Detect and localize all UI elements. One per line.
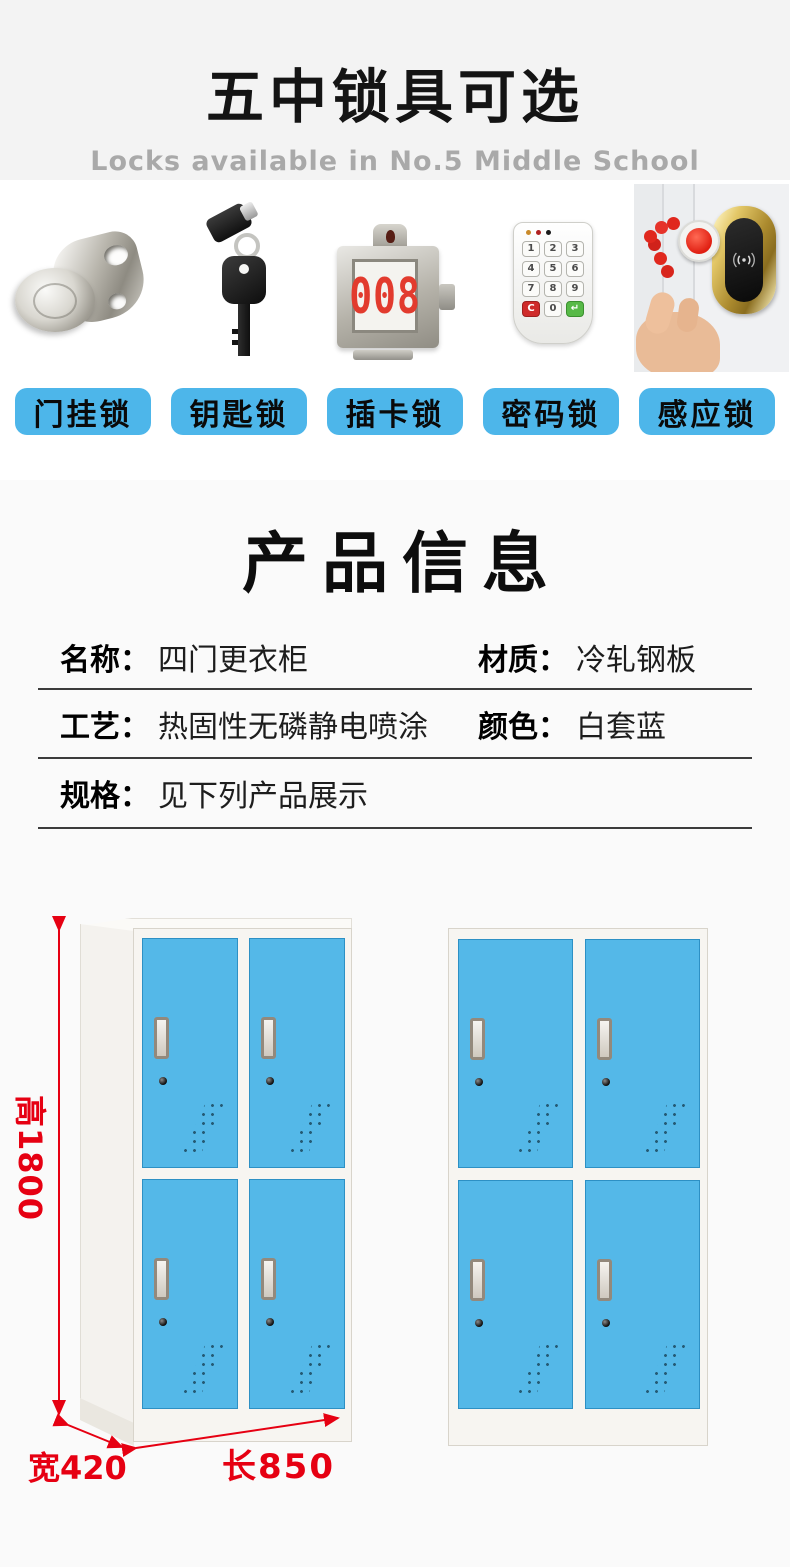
door-handle: [154, 1258, 169, 1300]
door-handle: [261, 1258, 276, 1300]
locker-door: [249, 938, 345, 1168]
keypad-lock-image: 1 2 3 4 5 6 7 8 9 C 0 ↵: [474, 180, 632, 388]
field-color: 颜色： 白套蓝: [478, 702, 752, 746]
locker-door: [585, 939, 700, 1168]
locker-door: [585, 1180, 700, 1409]
keyhole-icon: [475, 1078, 483, 1086]
lock-images-row: 008 1 2 3 4 5 6: [0, 180, 790, 388]
cam-body-shape: [15, 268, 95, 332]
dim-width-label: 宽420: [28, 1443, 127, 1489]
locker-door: [458, 939, 573, 1168]
card-lock-latch: [439, 284, 455, 310]
field-material-label: 材质：: [478, 635, 568, 679]
dim-length-label: 长850: [222, 1439, 335, 1488]
locks-hero-band: 五中锁具可选 Locks available in No.5 Middle Sc…: [0, 0, 790, 180]
vent-holes: [181, 1342, 225, 1398]
keypad-indicator-lights: [526, 230, 551, 235]
page-title: 五中锁具可选: [0, 0, 790, 134]
vent-holes: [516, 1101, 560, 1157]
keyhole-icon: [602, 1078, 610, 1086]
info-row-process-color: 工艺： 热固性无磷静电喷涂 颜色： 白套蓝: [38, 690, 752, 759]
lock-chip-key[interactable]: 钥匙锁: [171, 388, 307, 435]
cam-lock-icon: [13, 236, 145, 354]
keypad-key-0: 0: [544, 301, 562, 317]
card-lock-body: 008: [337, 246, 439, 348]
field-process-label: 工艺：: [60, 702, 150, 746]
lock-chip-cam[interactable]: 门挂锁: [15, 388, 151, 435]
page-subtitle: Locks available in No.5 Middle School: [0, 146, 790, 177]
rfid-lock-image: [632, 180, 790, 388]
door-handle: [597, 1259, 612, 1301]
info-row-name-material: 名称： 四门更衣柜 材质： 冷轧钢板: [38, 626, 752, 690]
key-head-shape: [222, 256, 266, 304]
door-handle: [597, 1018, 612, 1060]
keyhole-icon: [602, 1319, 610, 1327]
hand-shape: [636, 312, 720, 372]
card-lock-number-plate: 008: [352, 259, 418, 333]
rfid-fob: [678, 220, 720, 262]
keypad-key-1: 1: [522, 241, 540, 257]
vent-holes: [288, 1101, 332, 1157]
cabinet-right-front: [448, 928, 708, 1446]
keyhole-icon: [266, 1318, 274, 1326]
product-info-title: 产品信息: [0, 480, 790, 602]
field-name-label: 名称：: [60, 635, 150, 679]
vent-holes: [516, 1342, 560, 1398]
keypad-key-9: 9: [566, 281, 584, 297]
keypad-key-7: 7: [522, 281, 540, 297]
locker-door: [249, 1179, 345, 1409]
keyhole-icon: [159, 1318, 167, 1326]
lock-chip-keypad[interactable]: 密码锁: [483, 388, 619, 435]
keypad-keys: 1 2 3 4 5 6 7 8 9 C 0 ↵: [514, 241, 592, 317]
product-info-table: 名称： 四门更衣柜 材质： 冷轧钢板 工艺： 热固性无磷静电喷涂 颜色： 白套蓝: [38, 626, 752, 829]
product-detail-page: 五中锁具可选 Locks available in No.5 Middle Sc…: [0, 0, 790, 1567]
lock-chip-card[interactable]: 插卡锁: [327, 388, 463, 435]
lock-chip-rfid[interactable]: 感应锁: [639, 388, 775, 435]
keypad-key-5: 5: [544, 261, 562, 277]
field-material-value: 冷轧钢板: [576, 635, 696, 679]
card-lock-icon: 008: [333, 224, 457, 366]
keypad-lock-icon: 1 2 3 4 5 6 7 8 9 C 0 ↵: [513, 222, 593, 344]
product-info-section: 产品信息 名称： 四门更衣柜 材质： 冷轧钢板 工艺： 热固性无磷静电喷涂 颜色: [0, 480, 790, 1567]
keyhole-icon: [266, 1077, 274, 1085]
info-row-spec: 规格： 见下列产品展示: [38, 759, 752, 829]
lock-options-section: 008 1 2 3 4 5 6: [0, 180, 790, 480]
vent-holes: [643, 1101, 687, 1157]
dim-height-label: 高1800: [19, 1083, 55, 1233]
cabinet-front-panel: [133, 928, 352, 1442]
cabinet-doors-grid: [142, 938, 345, 1409]
wristband-beads: [644, 230, 657, 243]
cabinet-left-perspective: [80, 916, 352, 1461]
vent-holes: [288, 1342, 332, 1398]
field-material: 材质： 冷轧钢板: [478, 635, 752, 679]
rfid-lock-icon: [712, 206, 776, 314]
keypad-key-enter: ↵: [566, 301, 584, 317]
lock-labels-row: 门挂锁 钥匙锁 插卡锁 密码锁 感应锁: [0, 388, 790, 480]
keyhole-icon: [159, 1077, 167, 1085]
field-spec-label: 规格：: [60, 771, 150, 815]
field-name-value: 四门更衣柜: [158, 635, 308, 679]
keypad-key-4: 4: [522, 261, 540, 277]
field-name: 名称： 四门更衣柜: [38, 635, 478, 679]
vent-holes: [643, 1342, 687, 1398]
rfid-signal-icon: [731, 247, 757, 273]
key-lock-image: [158, 180, 316, 388]
rfid-lock-photo: [634, 184, 789, 372]
door-handle: [470, 1259, 485, 1301]
vent-holes: [181, 1101, 225, 1157]
field-color-label: 颜色：: [478, 702, 568, 746]
keypad-key-8: 8: [544, 281, 562, 297]
keyhole-icon: [475, 1319, 483, 1327]
keypad-key-3: 3: [566, 241, 584, 257]
locker-door: [142, 938, 238, 1168]
cabinet-doors-grid: [458, 939, 700, 1409]
cabinet-side-panel: [80, 924, 134, 1424]
key-blade-shape: [238, 304, 250, 356]
door-handle: [470, 1018, 485, 1060]
locker-number: 008: [349, 267, 421, 324]
door-handle: [154, 1017, 169, 1059]
field-color-value: 白套蓝: [576, 702, 666, 746]
cam-lock-image: [0, 180, 158, 388]
card-lock-base: [353, 350, 413, 360]
field-process-value: 热固性无磷静电喷涂: [158, 702, 428, 746]
locker-door: [458, 1180, 573, 1409]
cabinets-illustration: 高1800 宽420 长850: [0, 829, 790, 1561]
rfid-reader-face: [725, 218, 763, 302]
locker-door: [142, 1179, 238, 1409]
field-spec-value: 见下列产品展示: [158, 771, 368, 815]
key-lock-icon: [182, 206, 292, 358]
field-spec: 规格： 见下列产品展示: [38, 771, 478, 815]
keypad-key-clear: C: [522, 301, 540, 317]
card-lock-image: 008: [316, 180, 474, 388]
keypad-key-6: 6: [566, 261, 584, 277]
door-handle: [261, 1017, 276, 1059]
field-process: 工艺： 热固性无磷静电喷涂: [38, 702, 478, 746]
keypad-key-2: 2: [544, 241, 562, 257]
